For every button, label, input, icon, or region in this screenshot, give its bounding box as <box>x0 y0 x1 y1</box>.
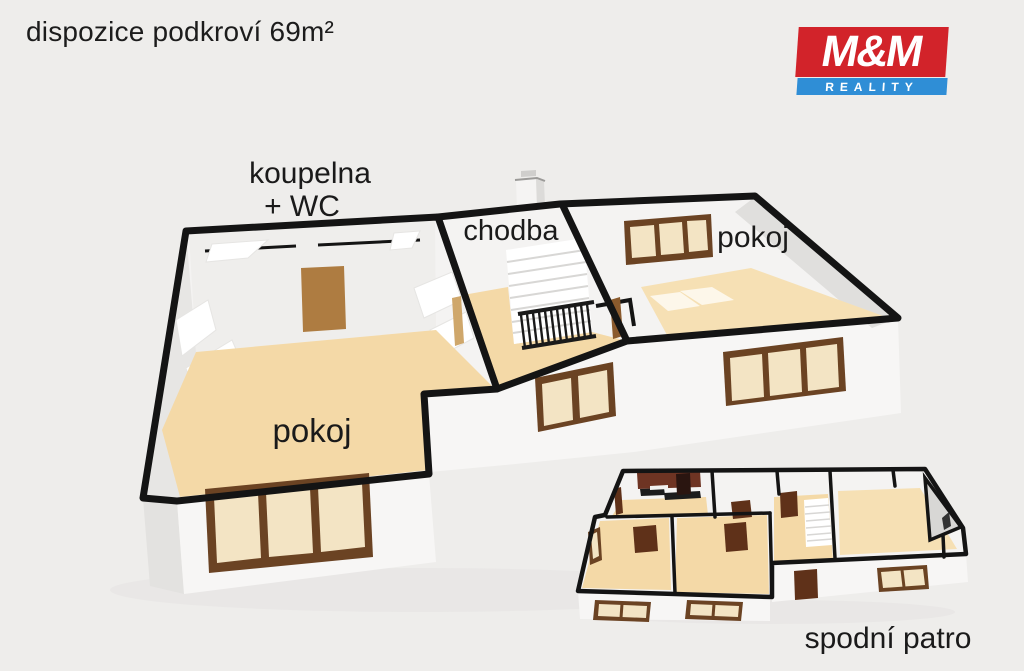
staircase <box>506 238 592 344</box>
door-lower-front <box>794 569 818 600</box>
label-pokoj-right: pokoj <box>717 221 789 254</box>
label-koupelna: koupelna <box>249 157 371 190</box>
kitchen-unit <box>637 471 701 500</box>
door-lower-2 <box>724 522 748 552</box>
window-pokoj-right-back <box>624 214 713 265</box>
lower-floor-plan: spodní patro <box>578 469 971 655</box>
right-tip-wall <box>925 478 961 540</box>
floorplan-page: dispozice podkroví 69m² M&M REALITY <box>0 0 1024 671</box>
label-spodni-patro: spodní patro <box>805 622 972 655</box>
floorplan-drawing: koupelna + WC chodba pokoj pokoj <box>0 0 1024 671</box>
lower-staircase <box>804 498 832 547</box>
window-lower-front-1 <box>593 600 651 622</box>
door-lower-4 <box>780 491 798 518</box>
label-chodba: chodba <box>463 215 559 247</box>
door-pokoj-left <box>301 266 346 332</box>
window-lower-front-2 <box>685 600 743 621</box>
label-pokoj-left: pokoj <box>273 412 352 449</box>
door-lower-1 <box>633 525 658 553</box>
label-koupelna-wc: + WC <box>264 190 340 223</box>
door-lower-3 <box>731 500 752 519</box>
window-lower-front-3 <box>877 565 929 592</box>
